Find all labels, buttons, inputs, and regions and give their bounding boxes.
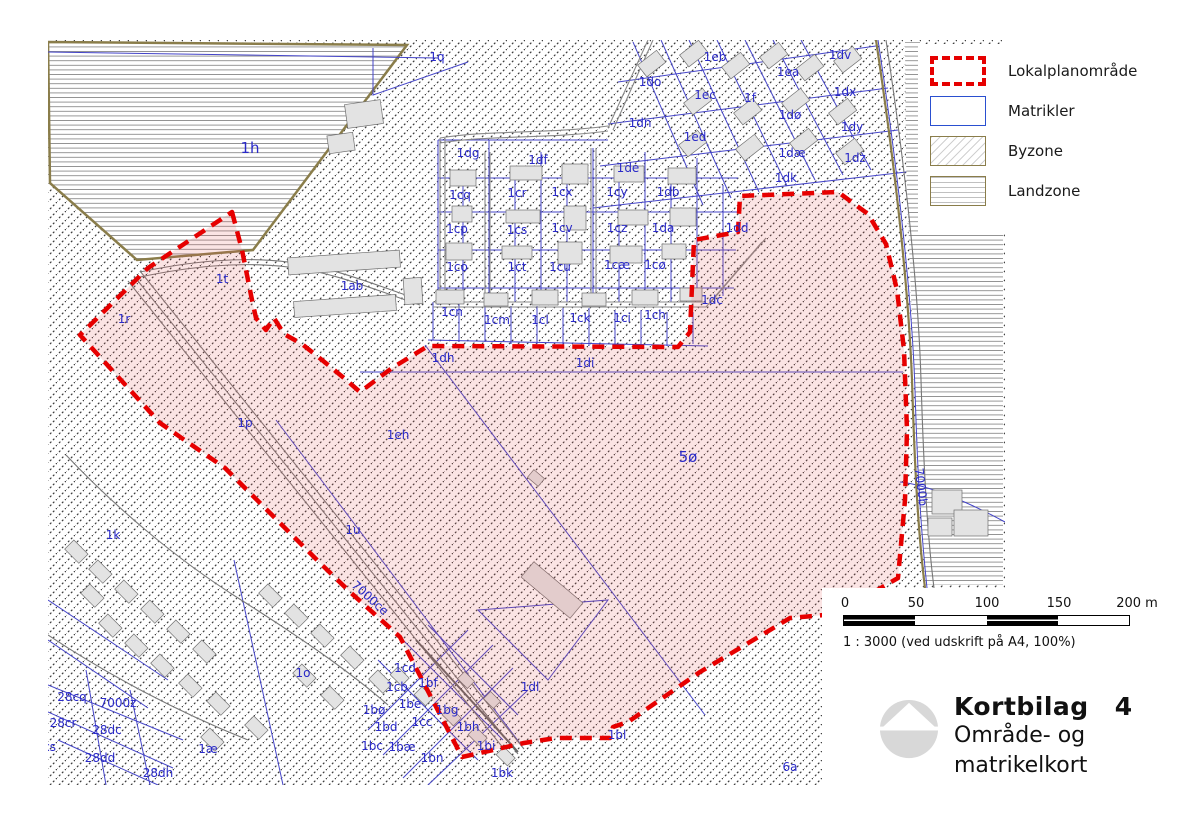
scale-tick-150: 150 — [1047, 596, 1072, 611]
title-block: Kortbilag4 Område- og matrikelkort — [878, 692, 1133, 781]
scale-tick-100: 100 — [975, 596, 1000, 611]
title-word: Kortbilag — [954, 692, 1089, 721]
scale-tick-200: 200 m — [1116, 596, 1158, 611]
municipality-logo-icon — [878, 698, 940, 760]
scale-caption: 1 : 3000 (ved udskrift på A4, 100%) — [843, 635, 1143, 650]
subtitle-line-2: matrikelkort — [954, 751, 1133, 781]
legend-label: Byzone — [1008, 142, 1063, 160]
map-footer-panel: 0 50 100 150 200 m 1 : 3000 (ved udskrif… — [822, 588, 1181, 827]
legend-item-landzone: Landzone — [930, 172, 1080, 210]
legend-item-matrikler: Matrikler — [930, 92, 1075, 130]
scale-bar-graphic — [843, 615, 1130, 626]
scale-segment — [987, 616, 1058, 625]
lokalplan-swatch-icon — [930, 56, 986, 86]
matrikler-swatch-icon — [930, 96, 986, 126]
scale-bar: 0 50 100 150 200 m 1 : 3000 (ved udskrif… — [843, 596, 1143, 650]
scale-segment — [915, 616, 986, 625]
scale-tick-50: 50 — [908, 596, 925, 611]
title-number: 4 — [1115, 692, 1133, 721]
subtitle-line-1: Område- og — [954, 721, 1133, 751]
scale-tick-0: 0 — [841, 596, 849, 611]
legend-item-lokalplanomraade: Lokalplanområde — [930, 52, 1137, 90]
legend-label: Lokalplanområde — [1008, 62, 1137, 80]
legend: Lokalplanområde Matrikler Byzone Landzon… — [918, 44, 1163, 232]
legend-label: Landzone — [1008, 182, 1080, 200]
legend-item-byzone: Byzone — [930, 132, 1063, 170]
scale-segment — [844, 616, 915, 625]
scale-tick-labels: 0 50 100 150 200 m — [843, 596, 1143, 612]
byzone-swatch-icon — [930, 136, 986, 166]
scale-segment — [1058, 616, 1129, 625]
page-title: Kortbilag4 — [954, 692, 1133, 721]
legend-label: Matrikler — [1008, 102, 1075, 120]
map-sheet: 1h1q1dg1df1de1cq1cr1cx1cy1db1cp1cs1cv1cz… — [0, 0, 1181, 827]
landzone-swatch-icon — [930, 176, 986, 206]
